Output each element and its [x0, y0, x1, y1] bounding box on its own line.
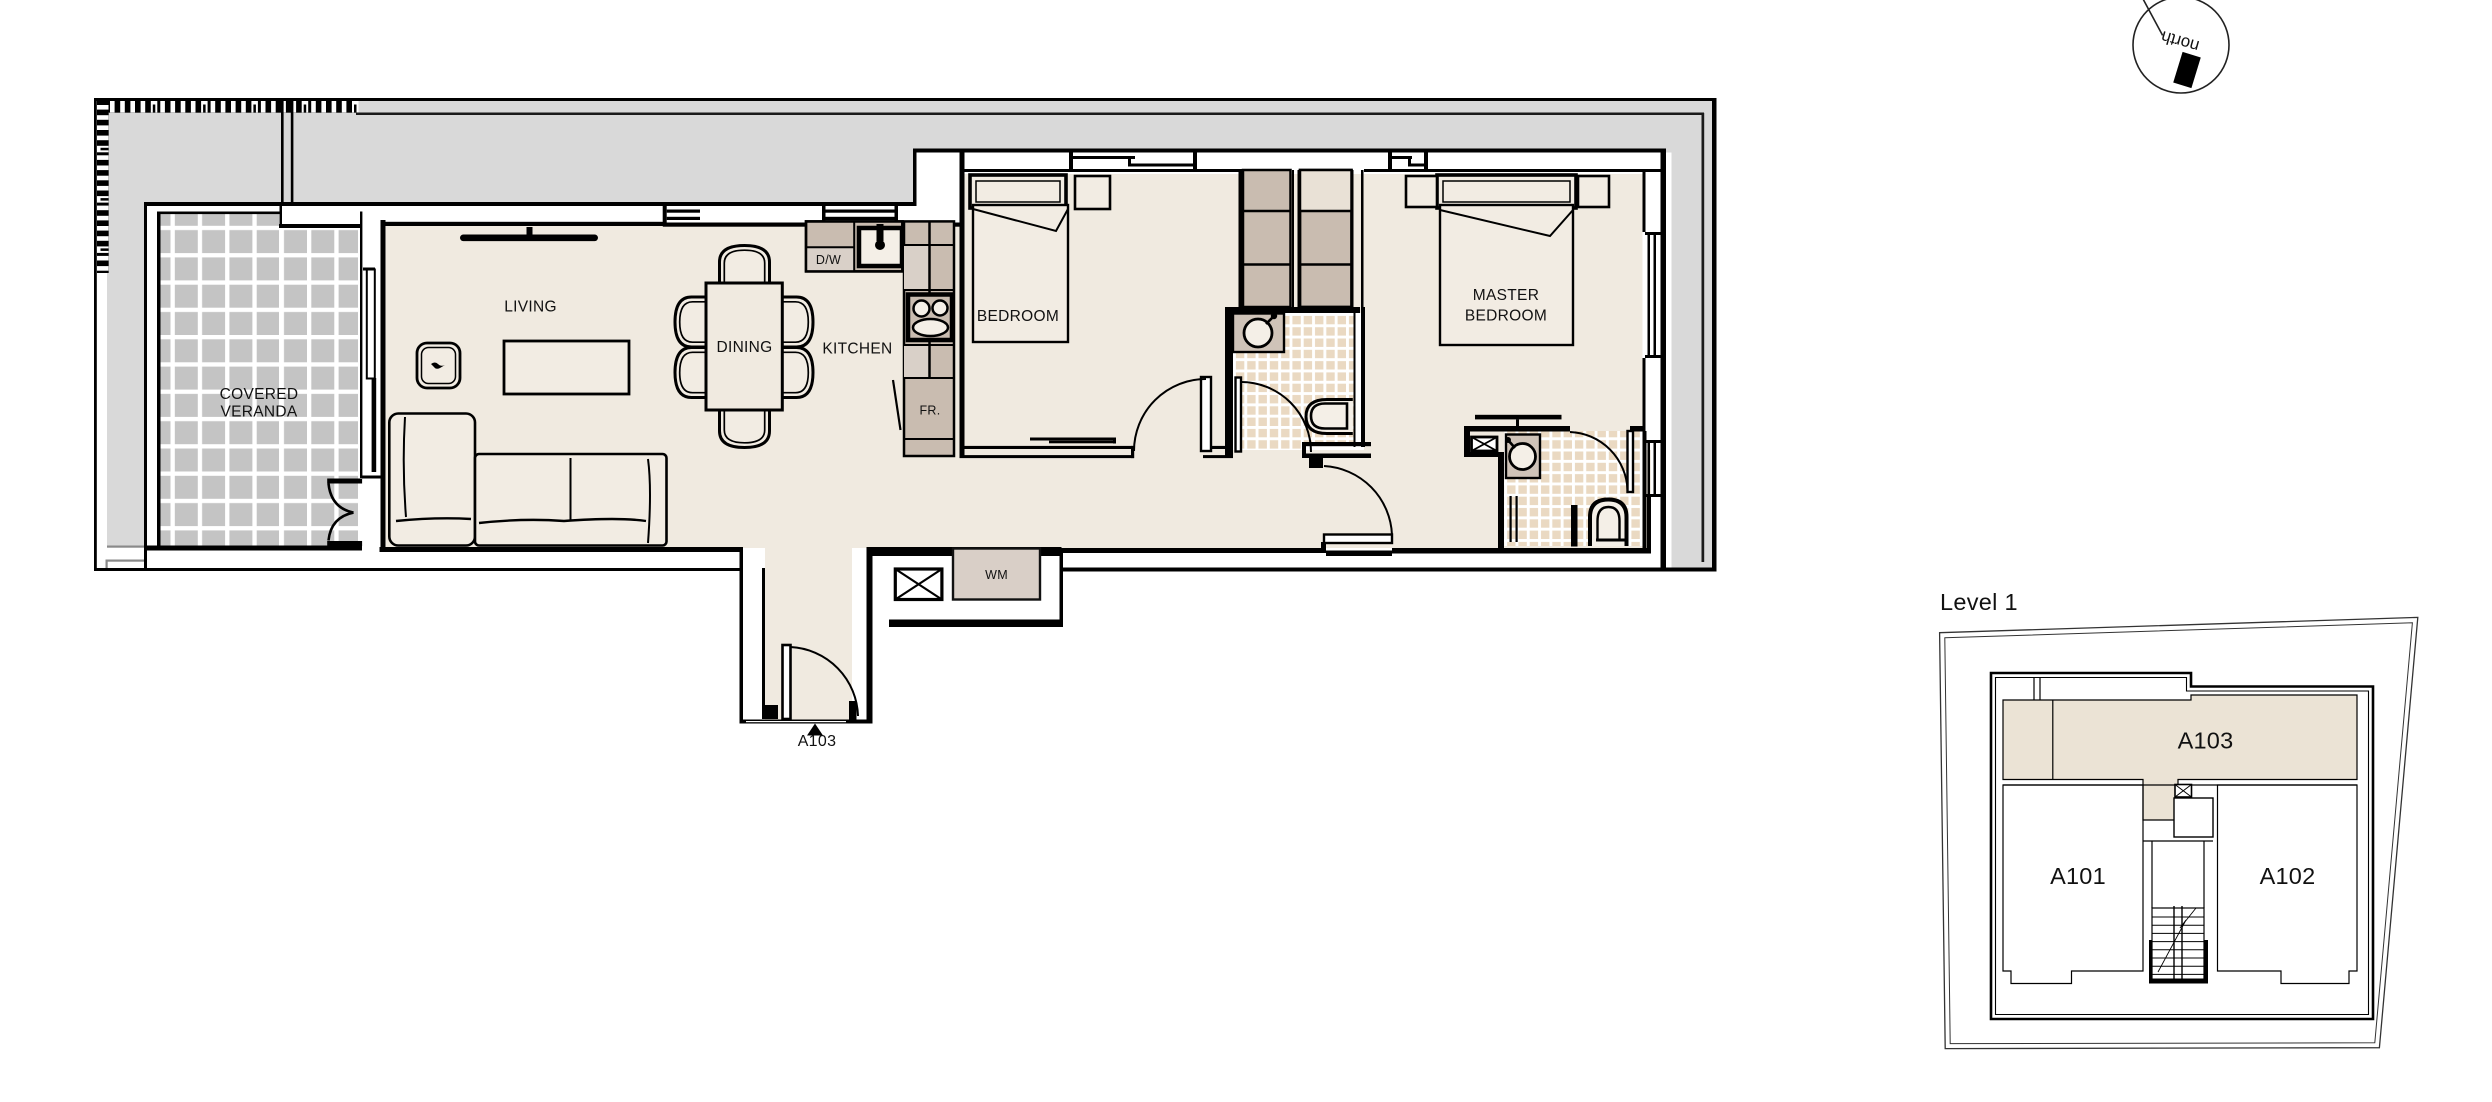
svg-text:A103: A103 — [798, 733, 837, 750]
svg-text:FR.: FR. — [919, 404, 940, 418]
svg-text:BEDROOM: BEDROOM — [977, 308, 1059, 325]
svg-text:Level 1: Level 1 — [1940, 589, 2018, 615]
svg-text:A102: A102 — [2260, 863, 2316, 889]
svg-text:COVERED: COVERED — [220, 386, 299, 403]
svg-text:DINING: DINING — [716, 339, 772, 356]
svg-text:MASTER: MASTER — [1473, 287, 1539, 304]
svg-text:D/W: D/W — [816, 253, 841, 267]
svg-text:A101: A101 — [2050, 863, 2106, 889]
svg-text:BEDROOM: BEDROOM — [1465, 308, 1547, 325]
svg-text:LIVING: LIVING — [504, 299, 557, 316]
svg-text:A103: A103 — [2178, 728, 2234, 754]
svg-text:KITCHEN: KITCHEN — [822, 341, 892, 358]
svg-text:WM: WM — [985, 568, 1008, 582]
svg-text:VERANDA: VERANDA — [220, 404, 297, 421]
